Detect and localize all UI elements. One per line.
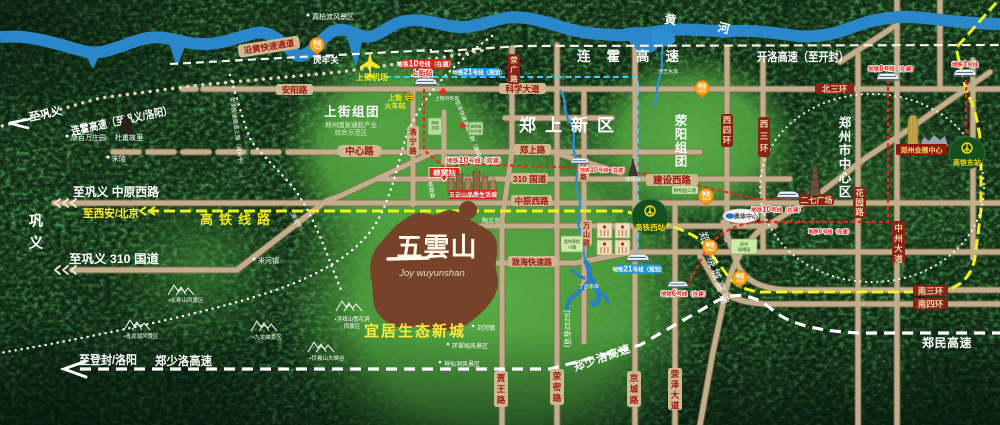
svg-text:康百万庄园: 康百万庄园: [71, 133, 106, 142]
svg-text:五云山品质生活城: 五云山品质生活城: [449, 191, 497, 199]
svg-text:真柏渡风景区: 真柏渡风景区: [312, 12, 354, 21]
svg-text:310 国道: 310 国道: [513, 174, 547, 184]
svg-text:上街丹尼斯: 上街丹尼斯: [435, 95, 459, 102]
svg-text:南四环: 南四环: [918, 299, 944, 309]
svg-text:荥广路: 荥广路: [510, 55, 518, 84]
svg-text:洛宁路: 洛宁路: [409, 127, 417, 156]
svg-text:科学大道: 科学大道: [505, 84, 540, 94]
svg-text:(S232省道): (S232省道): [563, 310, 573, 348]
svg-text:综合示范区: 综合示范区: [335, 128, 368, 137]
svg-text:上街机场: 上街机场: [356, 72, 388, 82]
svg-text:上街站: 上街站: [412, 69, 433, 78]
svg-text:郑民高速: 郑民高速: [922, 335, 972, 350]
svg-text:刘河镇: 刘河镇: [477, 324, 495, 332]
svg-text:陇海快速路: 陇海快速路: [512, 257, 553, 267]
svg-text:时代城: 时代城: [471, 129, 482, 134]
svg-text:宋陵: 宋陵: [112, 154, 126, 163]
svg-text:植物园三期: 植物园三期: [674, 187, 697, 194]
svg-text:郑上路: 郑上路: [520, 145, 546, 155]
svg-text:高铁东站: 高铁东站: [953, 158, 981, 167]
svg-text:至巩义 310 国道: 至巩义 310 国道: [69, 251, 159, 266]
svg-text:荥阳站: 荥阳站: [626, 176, 641, 183]
svg-text:至巩义 中原西路: 至巩义 中原西路: [73, 184, 160, 199]
svg-text:火车站: 火车站: [385, 101, 406, 110]
svg-text:河王水库: 河王水库: [658, 68, 678, 75]
svg-text:郑州市中心区: 郑州市中心区: [838, 115, 852, 199]
svg-text:宜居生态新城: 宜居生态新城: [364, 322, 466, 340]
svg-text:绿博园: 绿博园: [738, 246, 751, 253]
svg-text:京城路: 京城路: [630, 373, 639, 405]
svg-text:•浮戏山雪花洞: •浮戏山雪花洞: [335, 315, 370, 323]
svg-text:•伏羲山大峡谷: •伏羲山大峡谷: [310, 354, 345, 362]
svg-text:花园: 花园: [431, 125, 439, 130]
svg-text:杜甫故里: 杜甫故里: [115, 133, 143, 142]
svg-text:米河镇: 米河镇: [258, 256, 279, 265]
svg-text:绿城: 绿城: [431, 120, 439, 125]
svg-text:中原西路: 中原西路: [514, 196, 549, 206]
svg-text:高铁西站: 高铁西站: [635, 222, 665, 232]
svg-text:贾王路: 贾王路: [497, 373, 506, 405]
svg-text:陶古寺: 陶古寺: [482, 217, 500, 225]
svg-text:西四环: 西四环: [723, 115, 732, 145]
svg-text:开洛高速（至开封）: 开洛高速（至开封）: [757, 49, 849, 64]
svg-text:环翠峪风景区: 环翠峪风景区: [452, 342, 488, 350]
svg-text:安阳路: 安阳路: [282, 85, 308, 95]
svg-text:上街: 上街: [388, 93, 402, 102]
svg-text:•青龙湖风景区: •青龙湖风景区: [124, 332, 159, 340]
svg-text:上街组团: 上街组团: [324, 104, 380, 119]
svg-text:建设西路: 建设西路: [652, 175, 692, 187]
svg-text:黄: 黄: [664, 11, 678, 28]
svg-text:至西安/北京: 至西安/北京: [83, 206, 139, 220]
svg-text:•长寿山风景区: •长寿山风景区: [169, 296, 204, 304]
svg-text:至登封/洛阳: 至登封/洛阳: [79, 352, 137, 367]
svg-text:连霍高速: 连霍高速: [577, 48, 695, 64]
svg-text:风景区: 风景区: [344, 323, 361, 330]
svg-text:•九龙峡景区: •九龙峡景区: [252, 333, 282, 341]
svg-text:虎牢关: 虎牢关: [313, 55, 339, 65]
svg-text:小镇: 小镇: [568, 244, 576, 250]
svg-text:荥阳组团: 荥阳组团: [675, 113, 688, 169]
svg-text:奥特莱斯: 奥特莱斯: [564, 238, 580, 244]
svg-text:郑上新区: 郑上新区: [519, 115, 623, 135]
svg-text:南三环: 南三环: [918, 286, 944, 296]
svg-text:Joy wuyunshan: Joy wuyunshan: [398, 268, 464, 279]
svg-text:中州大道: 中州大道: [893, 223, 903, 264]
svg-text:丁店水库: 丁店水库: [579, 283, 599, 290]
svg-text:荥泽大道: 荥泽大道: [671, 369, 680, 411]
svg-text:神仙洞风景区: 神仙洞风景区: [444, 360, 480, 368]
svg-text:中心路: 中心路: [345, 146, 374, 158]
svg-text:西三环: 西三环: [760, 119, 769, 153]
svg-text:碧桂园: 碧桂园: [471, 124, 482, 129]
svg-text:郑州国家通航产业: 郑州国家通航产业: [325, 120, 378, 129]
svg-text:郑州会展中心: 郑州会展中心: [901, 146, 943, 155]
svg-text:荥密路: 荥密路: [552, 371, 562, 403]
svg-text:花园路: 花园路: [855, 188, 864, 217]
svg-text:高铁线路: 高铁线路: [200, 212, 276, 227]
svg-text:郑少洛高速: 郑少洛高速: [155, 353, 212, 368]
svg-text:北三环: 北三环: [822, 84, 848, 94]
